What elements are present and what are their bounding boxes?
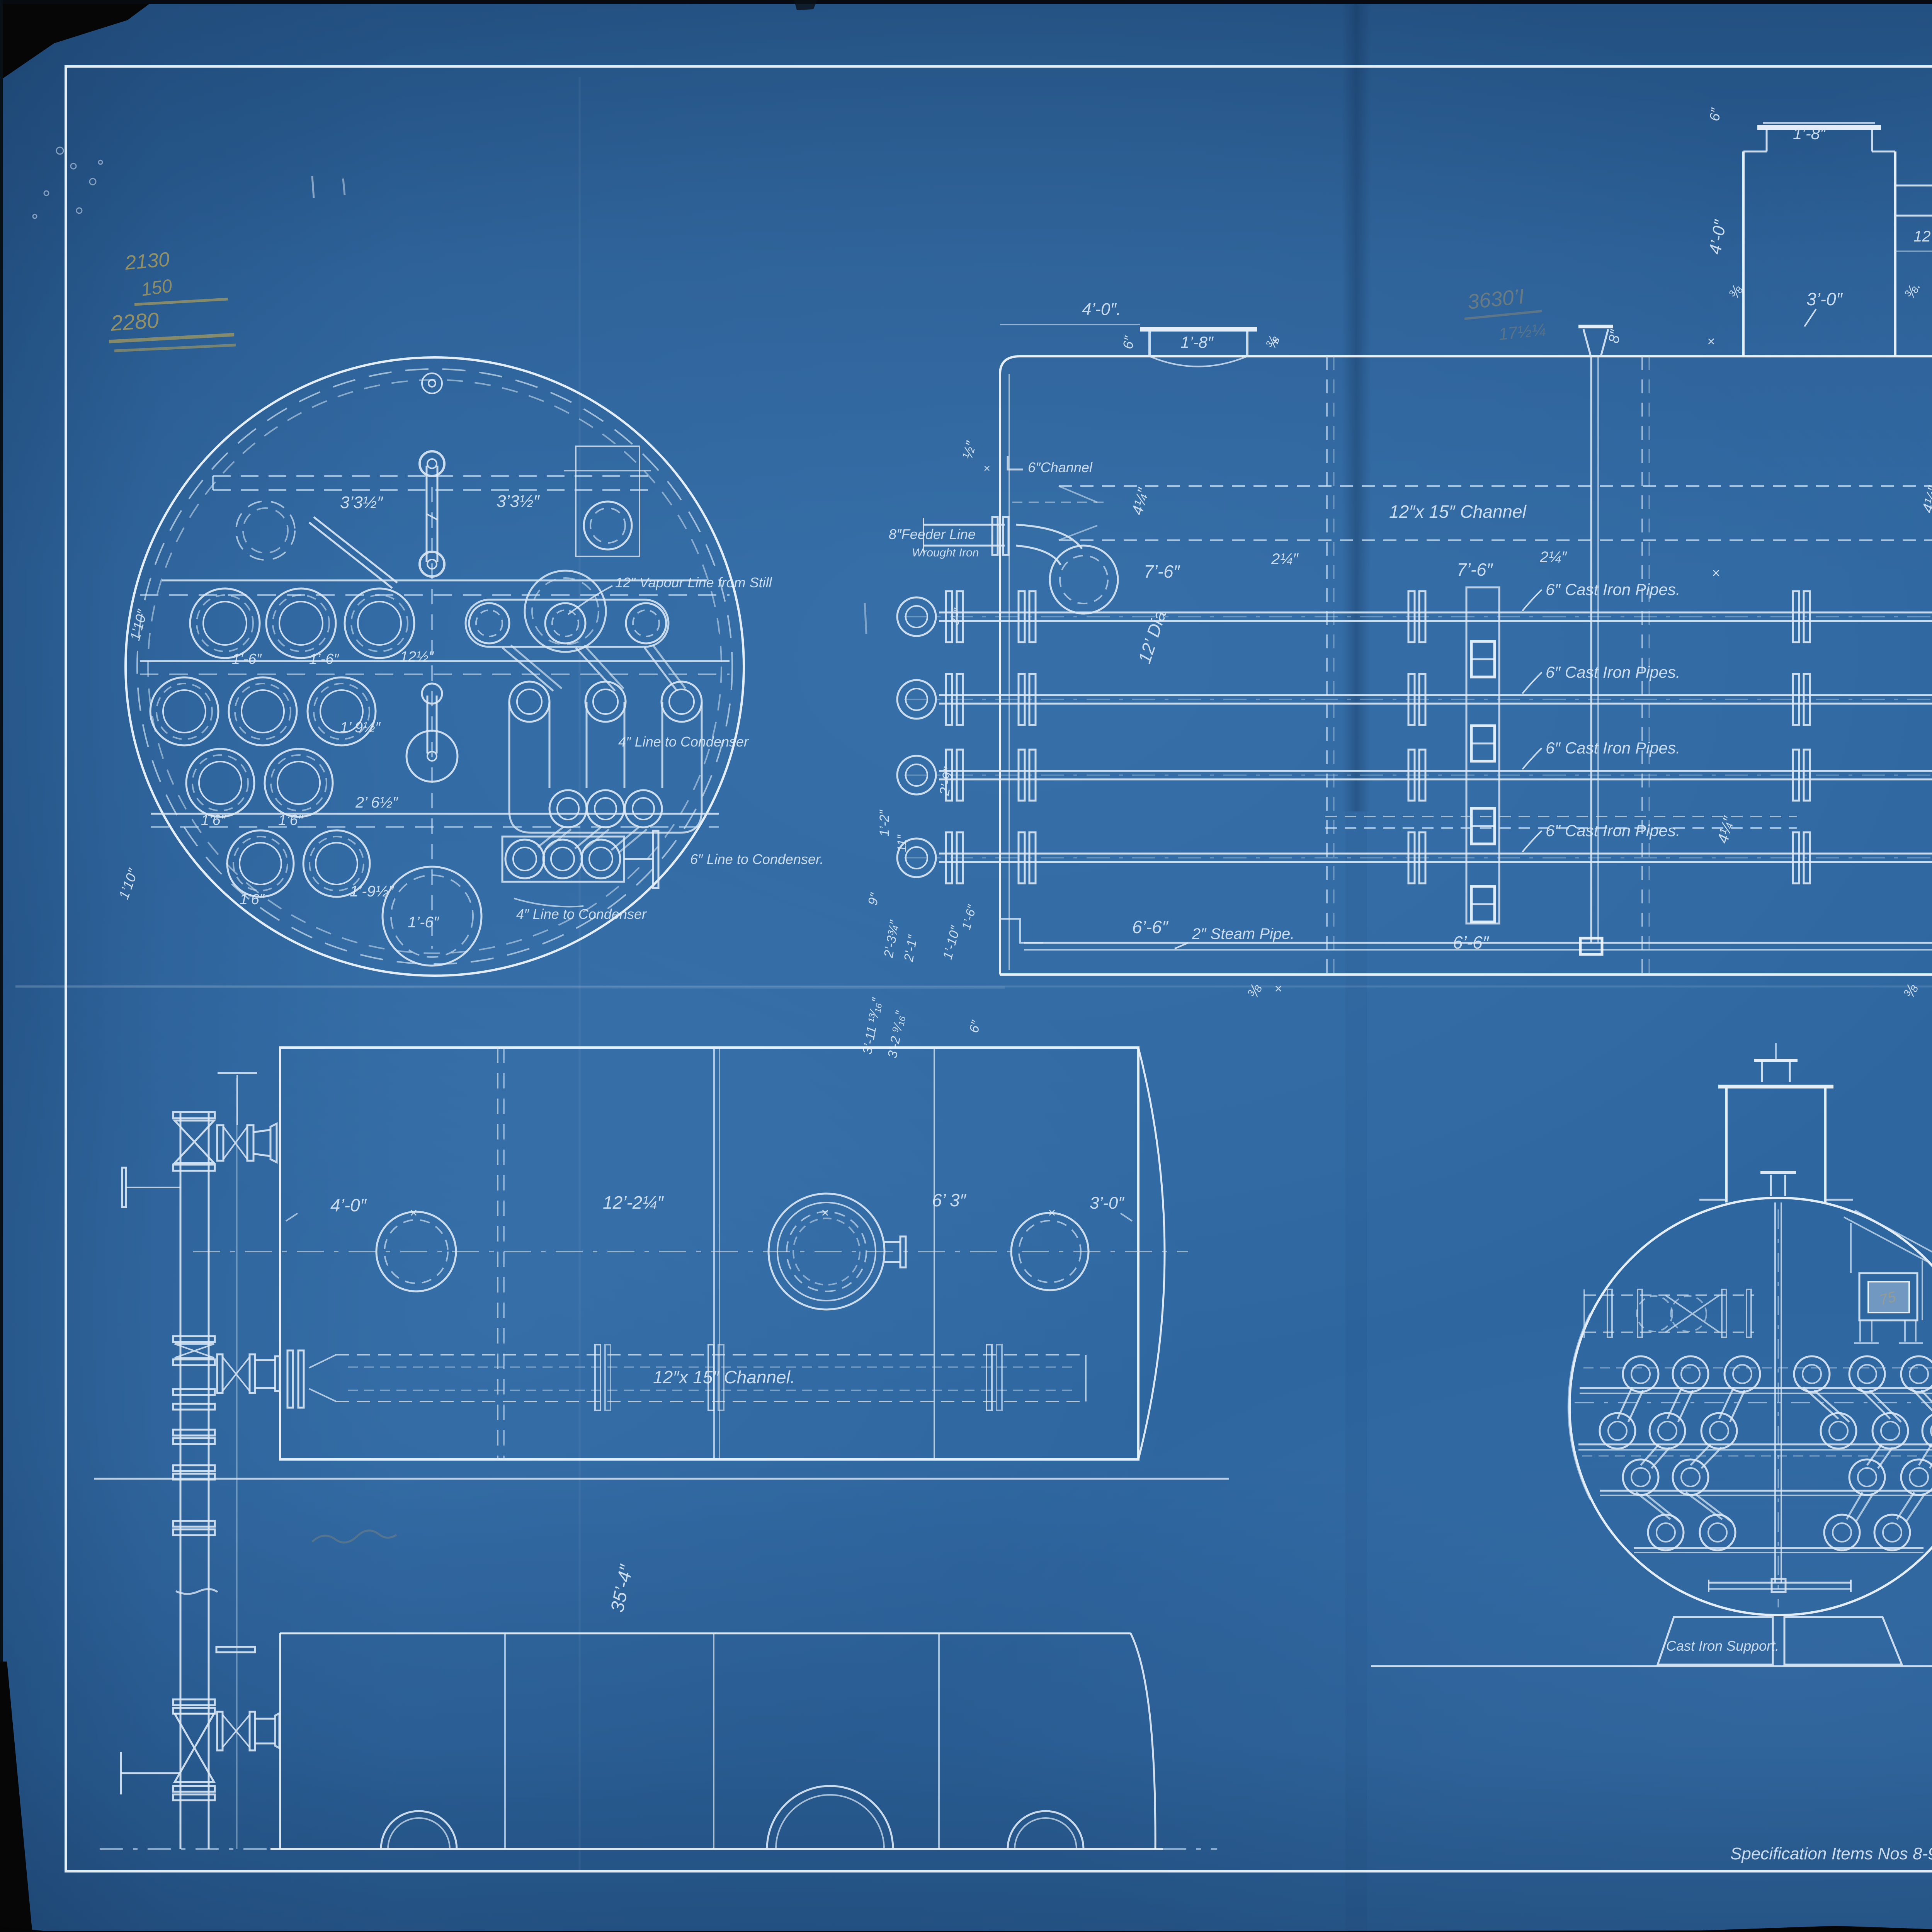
svg-text:1’-6″: 1’-6″ — [309, 651, 339, 667]
svg-text:3’3½″: 3’3½″ — [340, 493, 383, 512]
svg-text:6’-6″: 6’-6″ — [1453, 932, 1490, 952]
svg-text:6″ Cast Iron Pipes.: 6″ Cast Iron Pipes. — [1546, 580, 1680, 599]
svg-text:1’-2″: 1’-2″ — [877, 810, 892, 837]
svg-text:12’-2¼″: 12’-2¼″ — [603, 1192, 664, 1213]
svg-text:4’-0″: 4’-0″ — [330, 1195, 367, 1215]
svg-text:11″: 11″ — [895, 834, 909, 852]
svg-text:Wrought Iron: Wrought Iron — [912, 546, 979, 559]
svg-text:7’-6″: 7’-6″ — [1457, 560, 1493, 580]
svg-text:×: × — [1712, 565, 1720, 581]
svg-text:1’6″: 1’6″ — [240, 891, 265, 908]
svg-text:7’-6″: 7’-6″ — [1144, 561, 1180, 582]
svg-text:12″x 15″ Channel: 12″x 15″ Channel — [1389, 502, 1527, 522]
svg-text:12″ Vapour Line from Still: 12″ Vapour Line from Still — [615, 575, 772, 590]
svg-text:2″ Steam Pipe.: 2″ Steam Pipe. — [1192, 925, 1294, 942]
svg-text:2130: 2130 — [124, 248, 170, 274]
svg-text:6″ Cast Iron Pipes.: 6″ Cast Iron Pipes. — [1546, 663, 1680, 681]
svg-text:6″ Cast Iron Pipes.: 6″ Cast Iron Pipes. — [1546, 739, 1680, 757]
svg-text:Cast Iron Support.: Cast Iron Support. — [1666, 1638, 1779, 1654]
svg-text:×: × — [983, 462, 990, 475]
svg-text:6’ 3″: 6’ 3″ — [932, 1190, 967, 1210]
svg-text:3’3½″: 3’3½″ — [497, 492, 540, 511]
svg-text:2¼″: 2¼″ — [1539, 549, 1568, 566]
svg-text:1’-6″: 1’-6″ — [232, 651, 262, 667]
svg-text:4’-0″.: 4’-0″. — [1082, 300, 1121, 319]
svg-text:150: 150 — [140, 276, 173, 300]
svg-text:6’-6″: 6’-6″ — [1132, 917, 1169, 937]
svg-text:1’-8″: 1’-8″ — [1180, 333, 1214, 351]
svg-text:4″ Line to Condenser: 4″ Line to Condenser — [516, 906, 647, 922]
svg-text:12½″: 12½″ — [400, 649, 434, 665]
svg-text:1’-6″: 1’-6″ — [408, 914, 440, 931]
svg-text:Specification Items Nos 8‑9‑10: Specification Items Nos 8‑9‑10‑11‑34‑41‑… — [1730, 1844, 1932, 1863]
svg-text:1’-9½″: 1’-9½″ — [350, 883, 395, 900]
svg-text:2280: 2280 — [109, 308, 160, 335]
svg-text:2’ 6½″: 2’ 6½″ — [355, 794, 399, 811]
svg-text:×: × — [1271, 334, 1279, 349]
svg-text:6″Channel: 6″Channel — [1028, 459, 1093, 475]
svg-text:12″x 15″ Channel.: 12″x 15″ Channel. — [653, 1367, 795, 1387]
svg-text:1’-8″: 1’-8″ — [1793, 124, 1827, 143]
svg-text:×: × — [821, 1206, 829, 1220]
svg-text:1’ 9½″: 1’ 9½″ — [340, 719, 381, 736]
svg-text:×: × — [1707, 334, 1715, 349]
svg-text:3’-0″: 3’-0″ — [1806, 289, 1843, 309]
svg-text:8″Feeder Line: 8″Feeder Line — [889, 526, 976, 542]
svg-text:12″: 12″ — [1913, 228, 1932, 245]
svg-text:4″ Line to Condenser: 4″ Line to Condenser — [618, 734, 749, 750]
svg-text:3’-0″: 3’-0″ — [1090, 1194, 1124, 1213]
svg-text:×: × — [410, 1206, 417, 1220]
svg-text:2¼″: 2¼″ — [1271, 551, 1299, 568]
svg-text:6″ Cast Iron Pipes.: 6″ Cast Iron Pipes. — [1546, 821, 1680, 840]
svg-text:×: × — [1048, 1206, 1056, 1220]
svg-text:6″ Line to Condenser.: 6″ Line to Condenser. — [690, 851, 824, 867]
svg-text:×: × — [1274, 981, 1282, 996]
